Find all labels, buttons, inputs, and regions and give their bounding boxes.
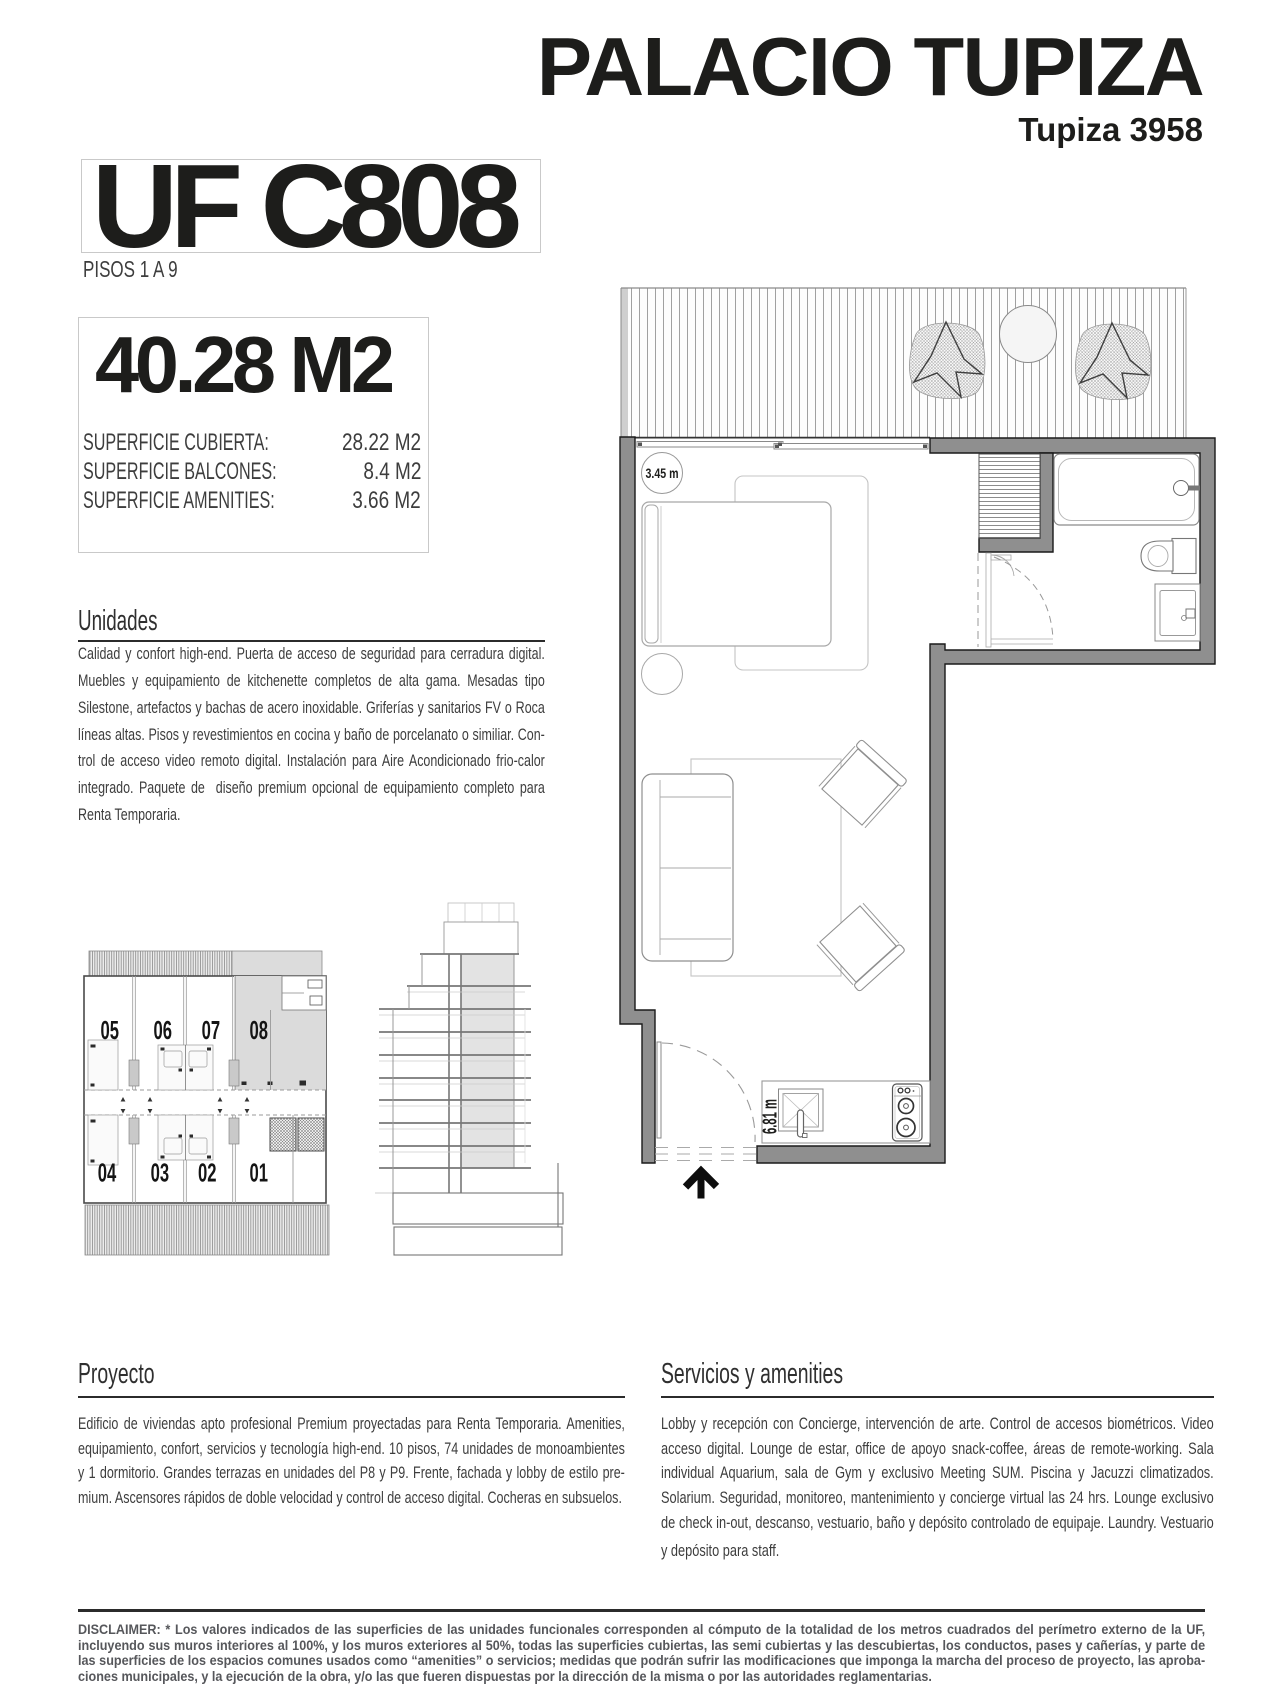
svg-text:07: 07 <box>202 1017 221 1045</box>
svg-text:05: 05 <box>100 1017 119 1045</box>
svg-text:6.81 m: 6.81 m <box>760 1099 782 1134</box>
svg-text:02: 02 <box>198 1160 217 1188</box>
svg-text:08: 08 <box>249 1017 268 1045</box>
svg-text:04: 04 <box>98 1160 117 1188</box>
svg-text:3.45 m: 3.45 m <box>646 466 679 481</box>
svg-text:01: 01 <box>249 1160 268 1188</box>
svg-text:06: 06 <box>153 1017 172 1045</box>
svg-text:03: 03 <box>151 1160 170 1188</box>
